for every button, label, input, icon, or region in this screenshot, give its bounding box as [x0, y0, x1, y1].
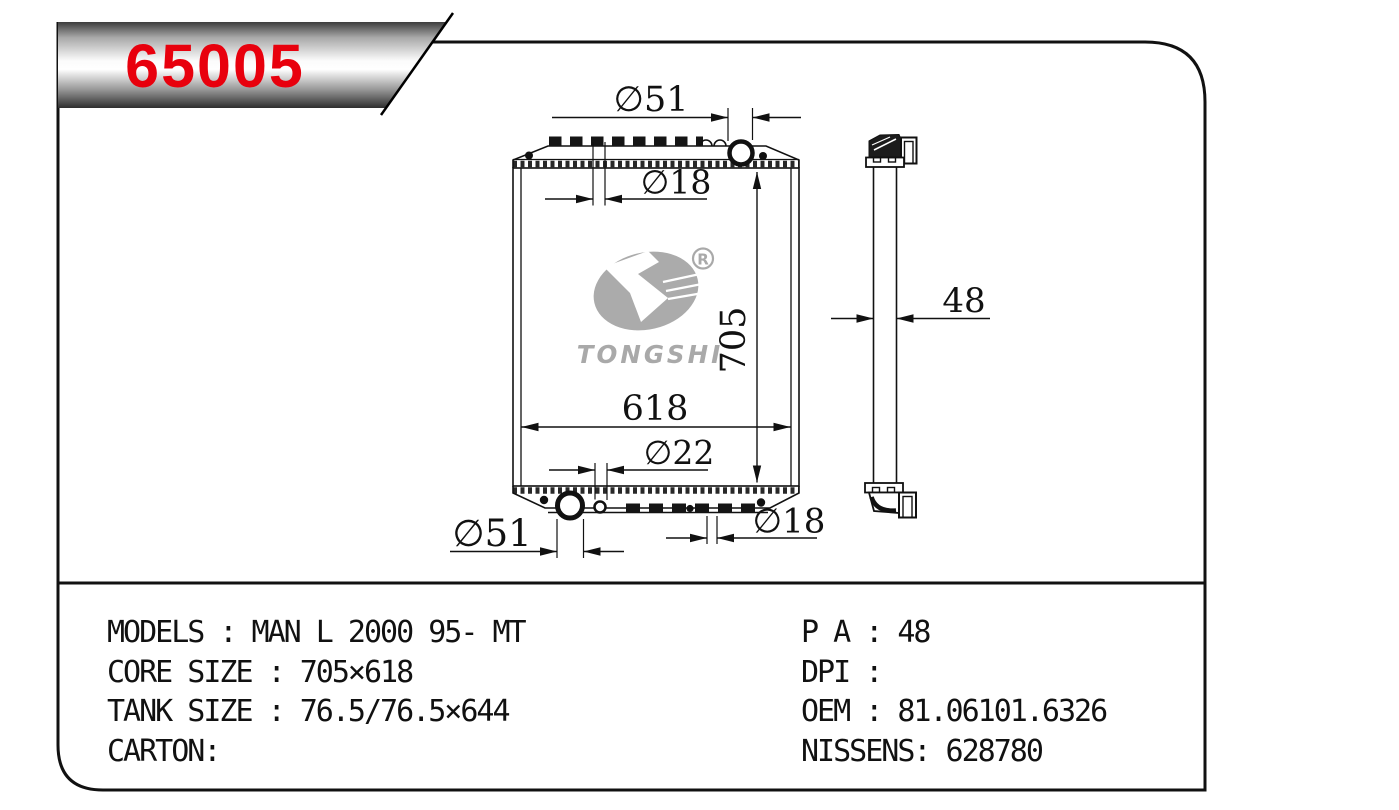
bottom-pipe: [558, 493, 583, 518]
spec-column-right: P A : 48 DPI : OEM : 81.06101.6326 NISSE…: [801, 613, 1106, 771]
brand-name: TONGSHI: [577, 340, 723, 369]
dimension-thickness: 48: [831, 281, 990, 323]
part-number: 65005: [125, 32, 305, 100]
drain-port: [595, 502, 606, 513]
dim-label-top-small: ∅18: [641, 163, 712, 202]
side-bottom-tank: [865, 483, 916, 518]
spec-pa: P A : 48: [801, 613, 1106, 653]
side-view: [865, 135, 917, 518]
dim-label-height: 705: [714, 307, 754, 374]
brand-logo: R TONGSHI: [577, 242, 723, 369]
spec-tank-size: TANK SIZE : 76.5/76.5×644: [107, 692, 525, 732]
registered-letter: R: [697, 251, 709, 269]
side-top-tank: [866, 135, 917, 168]
part-number-badge: 65005: [58, 13, 453, 115]
dimension-height: 705: [714, 172, 761, 483]
spec-oem: OEM : 81.06101.6326: [801, 692, 1106, 732]
dim-label-width: 618: [622, 389, 689, 429]
dimension-bottom-pipe: ∅51: [450, 512, 624, 558]
spec-carton: CARTON:: [107, 732, 525, 772]
dim-label-thickness: 48: [942, 281, 985, 321]
drawing-sheet: 65005 R TONGSHI: [0, 0, 1399, 810]
dimension-width: 618: [522, 389, 791, 431]
filler-neck: [730, 142, 753, 165]
dimension-top-pipe: ∅51: [552, 80, 801, 141]
dim-label-top-pipe: ∅51: [613, 80, 688, 120]
spec-dpi: DPI :: [801, 653, 1106, 693]
spec-nissens: NISSENS: 628780: [801, 732, 1106, 772]
spec-models: MODELS : MAN L 2000 95- MT: [107, 613, 525, 653]
spec-column-left: MODELS : MAN L 2000 95- MT CORE SIZE : 7…: [107, 613, 525, 771]
spec-core-size: CORE SIZE : 705×618: [107, 653, 525, 693]
dim-label-bottom-small: ∅22: [644, 433, 715, 472]
dimension-top-small: ∅18: [545, 142, 711, 206]
dim-label-bottom-right: ∅18: [753, 502, 826, 542]
dim-label-bottom-pipe: ∅51: [452, 512, 531, 555]
